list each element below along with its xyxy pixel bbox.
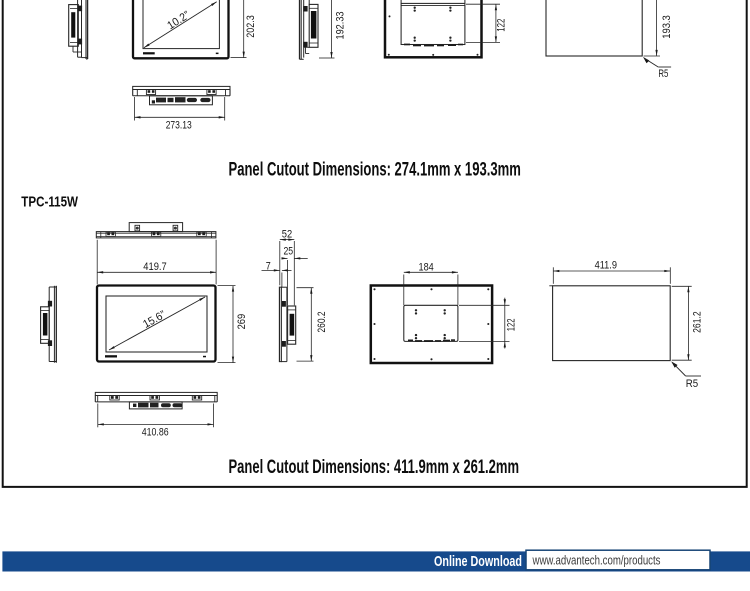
svg-text:TPC-115W: TPC-115W [21,194,78,211]
svg-text:Online Download: Online Download [434,553,522,570]
svg-text:www.advantech.com/products: www.advantech.com/products [532,554,661,568]
svg-text:260.2: 260.2 [316,312,328,333]
svg-text:269: 269 [236,314,248,330]
svg-text:261.2: 261.2 [692,311,704,333]
svg-text:7: 7 [266,260,271,272]
svg-text:193.3: 193.3 [661,15,673,39]
svg-text:184: 184 [419,262,434,274]
svg-text:273.13: 273.13 [166,120,192,132]
svg-text:411.9: 411.9 [595,260,617,272]
svg-text:52: 52 [282,228,292,240]
svg-text:10.2”: 10.2” [165,9,192,32]
svg-text:25: 25 [283,246,293,258]
svg-text:15.6”: 15.6” [141,309,168,331]
svg-text:192.33: 192.33 [335,12,347,40]
svg-text:122: 122 [495,19,507,32]
svg-text:Panel Cutout Dimensions: 274.1: Panel Cutout Dimensions: 274.1mm x 193.3… [229,159,521,181]
svg-text:R5: R5 [658,68,668,80]
svg-text:202.3: 202.3 [245,15,257,38]
svg-text:Panel Cutout Dimensions: 411.9: Panel Cutout Dimensions: 411.9mm x 261.2… [229,456,520,478]
svg-text:122: 122 [506,319,518,332]
svg-text:410.86: 410.86 [142,427,169,439]
svg-text:419.7: 419.7 [143,261,166,273]
svg-text:R5: R5 [686,378,698,390]
